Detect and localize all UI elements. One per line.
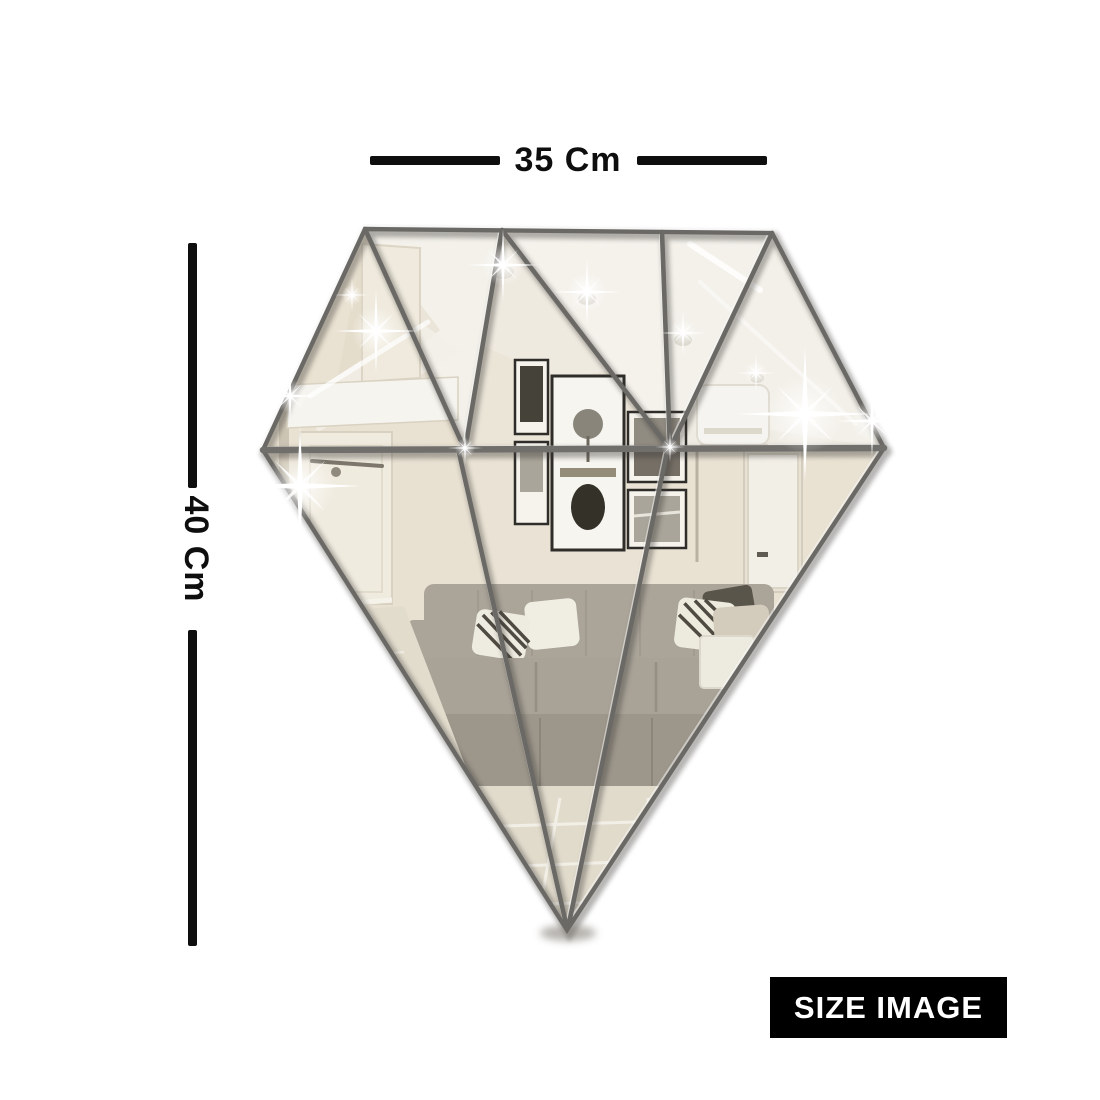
reflection-ac-unit xyxy=(697,385,769,449)
width-dimension-line-left xyxy=(370,156,500,165)
size-image-badge: SIZE IMAGE xyxy=(770,977,1007,1038)
width-dimension-label: 35 Cm xyxy=(488,140,648,180)
height-dimension-line-bottom xyxy=(188,630,197,946)
size-image-badge-label: SIZE IMAGE xyxy=(794,990,983,1026)
height-dimension-line-top xyxy=(188,243,197,488)
width-dimension-line-right xyxy=(637,156,767,165)
height-dimension-label: 40 Cm xyxy=(175,479,217,619)
product-size-image: 35 Cm 40 Cm SIZE IMAGE xyxy=(0,0,1100,1100)
